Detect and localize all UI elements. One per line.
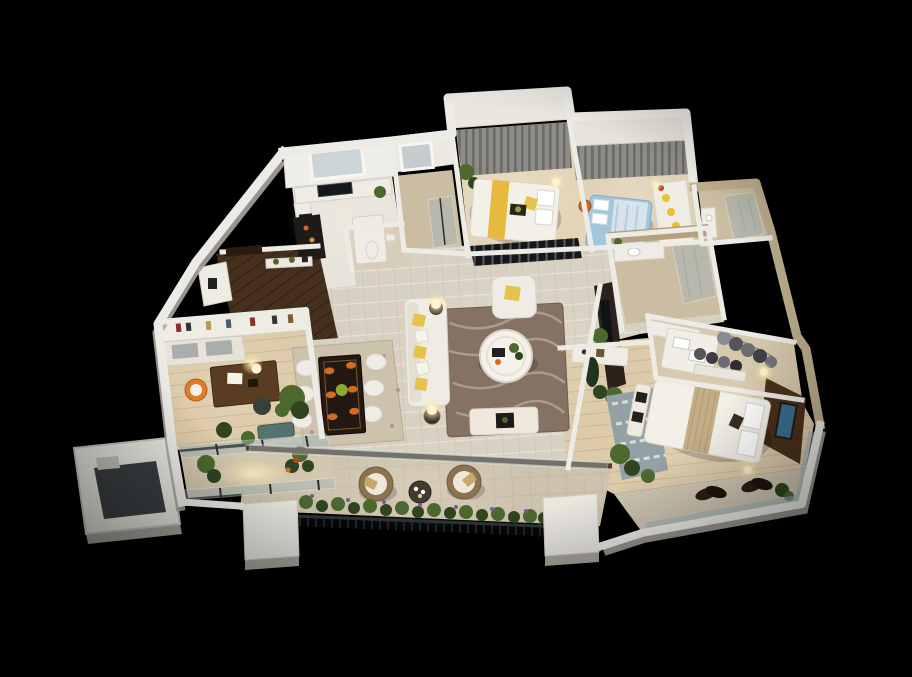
- wc-toilet: [366, 241, 378, 259]
- dining-table: [318, 355, 365, 436]
- coffee-table-tray: [492, 348, 505, 357]
- service-balcony-step: [96, 456, 120, 470]
- bath1-sink: [628, 248, 640, 256]
- dining-area: [292, 340, 404, 448]
- service-balcony-mat: [94, 461, 166, 519]
- service-balcony: [74, 438, 182, 544]
- terrace-pillar-right: [543, 494, 599, 566]
- terrace-pillar-left: [243, 500, 299, 570]
- study-guest-chair: [253, 397, 271, 415]
- entry-decor: [208, 278, 217, 289]
- living-armchair: [491, 275, 536, 319]
- kids-toy-2: [667, 208, 675, 216]
- kids-lamp-1: [648, 176, 664, 192]
- tea-table: [409, 481, 431, 503]
- floorplan-render-canvas: [0, 0, 912, 677]
- kids-toy-1: [662, 194, 670, 202]
- living-sofa: [404, 297, 450, 406]
- dining-chair: [366, 354, 386, 370]
- wc-sink: [386, 234, 395, 241]
- bedroom2-curtains: [456, 122, 572, 176]
- coffee-table-plant: [509, 343, 519, 353]
- dining-chair: [364, 380, 384, 396]
- living-bench: [470, 407, 539, 435]
- closet-clothes: [717, 331, 731, 345]
- apartment-floorplan: [0, 0, 912, 677]
- front-door-leaf: [226, 249, 262, 252]
- master-plant-1: [610, 444, 630, 464]
- study-plant-2: [216, 422, 232, 438]
- kitchen-plant: [374, 186, 386, 198]
